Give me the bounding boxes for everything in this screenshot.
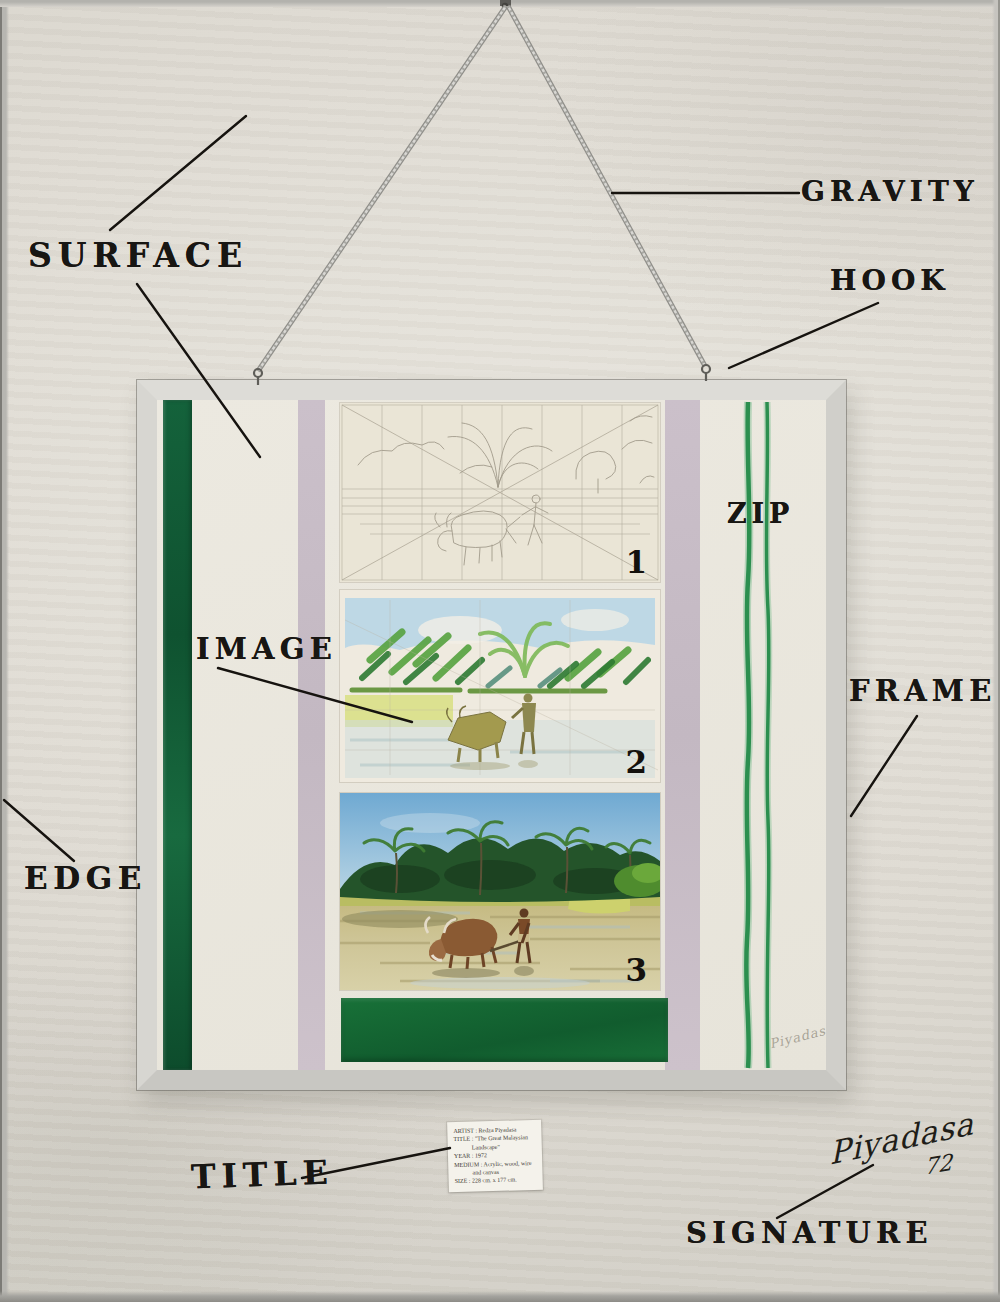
board-edge-bottom — [0, 1291, 1000, 1302]
artist-signature-year: 72 — [924, 1145, 976, 1179]
label-zip: ZIP — [727, 500, 794, 527]
picture-frame: 1 — [137, 380, 846, 1090]
board-edge-left — [0, 0, 9, 1302]
canvas: 1 — [157, 400, 826, 1070]
title-card-line: SIZE : 228 cm. x 177 cm. — [455, 1175, 539, 1186]
panel-number-3: 3 — [625, 955, 647, 986]
frame-leader-line — [851, 716, 917, 816]
label-surface: SURFACE — [28, 239, 248, 272]
label-title: TITLE — [190, 1156, 334, 1194]
label-frame: FRAME — [849, 677, 997, 706]
hanging-wire — [258, 6, 705, 371]
board-edge-right — [992, 0, 1000, 1302]
surface-leader-line-upper — [110, 116, 246, 230]
panel-number-2: 2 — [625, 747, 647, 778]
panel-number-1: 1 — [625, 547, 647, 578]
green-stripe — [163, 400, 192, 1070]
label-signature: SIGNATURE — [686, 1219, 933, 1248]
panel-2-colour-study: 2 — [340, 590, 660, 782]
green-bottom-block — [341, 998, 668, 1062]
board-edge-top — [0, 0, 1000, 7]
label-gravity: GRAVITY — [801, 178, 979, 206]
hook-leader-line — [729, 303, 878, 368]
mauve-stripe-left — [298, 400, 325, 1070]
artwork-photo: { "artwork": { "labels": { "surface": "S… — [0, 0, 1000, 1302]
mauve-stripe-right — [665, 400, 700, 1070]
pencil-sketch-drawing — [340, 403, 660, 582]
edge-leader-line — [4, 800, 74, 861]
finished-painting-drawing — [340, 793, 660, 990]
panel-1-pencil-sketch: 1 — [340, 403, 660, 582]
label-edge: EDGE — [24, 863, 147, 894]
title-card: ARTIST : Redza Piyadasa TITLE : "The Gre… — [447, 1120, 543, 1192]
panel-3-finished-painting: 3 — [340, 793, 660, 990]
label-hook: HOOK — [830, 267, 950, 295]
artist-signature: Piyadasa 72 — [828, 1120, 976, 1175]
label-image: IMAGE — [196, 635, 337, 664]
frame-hook-right — [702, 365, 710, 381]
colour-study-drawing — [340, 590, 660, 782]
